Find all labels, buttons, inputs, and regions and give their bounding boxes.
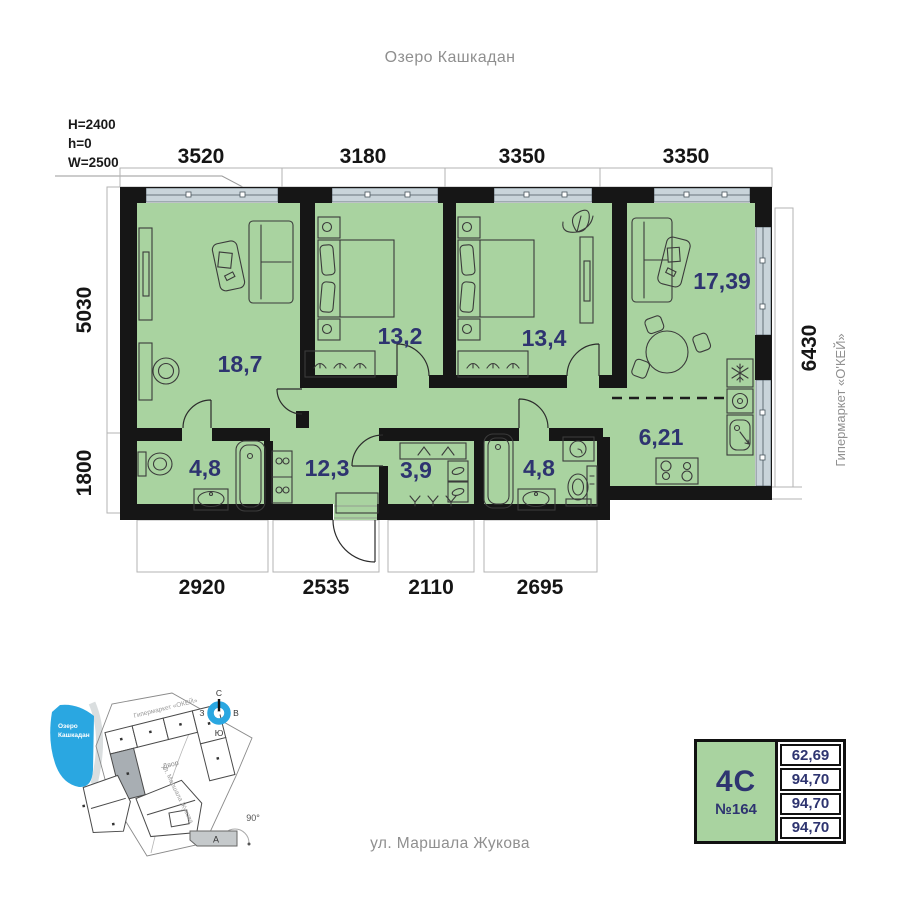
compass-w: З (199, 708, 204, 718)
room-area-kitchen-living: 17,39 (693, 268, 751, 294)
dim-left-1: 5030 (73, 287, 96, 334)
window-right-2 (756, 380, 771, 486)
room-area-wardrobe: 3,9 (400, 457, 432, 483)
dim-top-4: 3350 (663, 145, 710, 168)
dim-right-1: 6430 (798, 325, 821, 372)
room-area-bathroom1: 4,8 (189, 455, 221, 481)
hypermarket-label: Гипермаркет «О'КЕЙ» (833, 333, 848, 466)
dim-top-2: 3180 (340, 145, 387, 168)
apartment-card[interactable]: 4С №164 62,69 94,70 94,70 94,70 (694, 739, 846, 844)
compass-n: С (216, 688, 222, 698)
room-area-kitchen: 6,21 (639, 424, 684, 450)
dim-top-3: 3350 (499, 145, 546, 168)
section-label: А (213, 835, 219, 845)
dim-bottom-1: 2920 (179, 576, 226, 599)
apartment-type: 4С (716, 765, 756, 799)
window-right-1 (756, 227, 771, 335)
street-title: ул. Маршала Жукова (370, 835, 530, 852)
area-value-1: 62,69 (780, 744, 841, 766)
wall-living-bedroom1 (300, 203, 315, 388)
site-minimap: Озеро Кашкадан Двор Гипермаркет «ОКЕЙ» у… (50, 688, 260, 856)
lake-shape (50, 705, 94, 787)
room-area-bedroom2: 13,4 (522, 325, 567, 351)
section-marker: 90° А (190, 813, 260, 846)
apartment-type-cell: 4С №164 (697, 742, 778, 841)
lake-label-2: Кашкадан (58, 732, 90, 739)
room-area-bedroom1: 13,2 (378, 323, 423, 349)
angle-label: 90° (246, 813, 260, 823)
dim-bottom-3: 2110 (408, 576, 454, 599)
lake-label-1: Озеро (58, 723, 78, 730)
area-value-2: 94,70 (780, 768, 841, 790)
compass-e: В (233, 708, 239, 718)
area-value-3: 94,70 (780, 793, 841, 815)
spec-height: H=2400 (68, 117, 116, 132)
door-entry (333, 520, 375, 562)
room-area-hallway: 12,3 (305, 455, 350, 481)
wall-bedroom1-bedroom2 (443, 203, 456, 375)
apartment-number: №164 (715, 801, 757, 818)
dim-top-1: 3520 (178, 145, 225, 168)
area-value-4: 94,70 (780, 817, 841, 839)
dim-left-2: 1800 (73, 450, 96, 497)
lake-title: Озеро Кашкадан (385, 49, 516, 66)
window-specs: H=2400 h=0 W=2500 (55, 117, 258, 195)
room-area-bathroom2: 4,8 (523, 455, 555, 481)
dim-bottom-4: 2695 (517, 576, 564, 599)
dim-bottom-2: 2535 (303, 576, 350, 599)
spec-width: W=2500 (68, 155, 119, 170)
wall-bedroom2-livingkitchen (612, 203, 627, 375)
room-area-living: 18,7 (218, 351, 263, 377)
spec-sill: h=0 (68, 136, 92, 151)
apartment-areas: 62,69 94,70 94,70 94,70 (778, 742, 843, 841)
compass-s: Ю (215, 728, 224, 738)
